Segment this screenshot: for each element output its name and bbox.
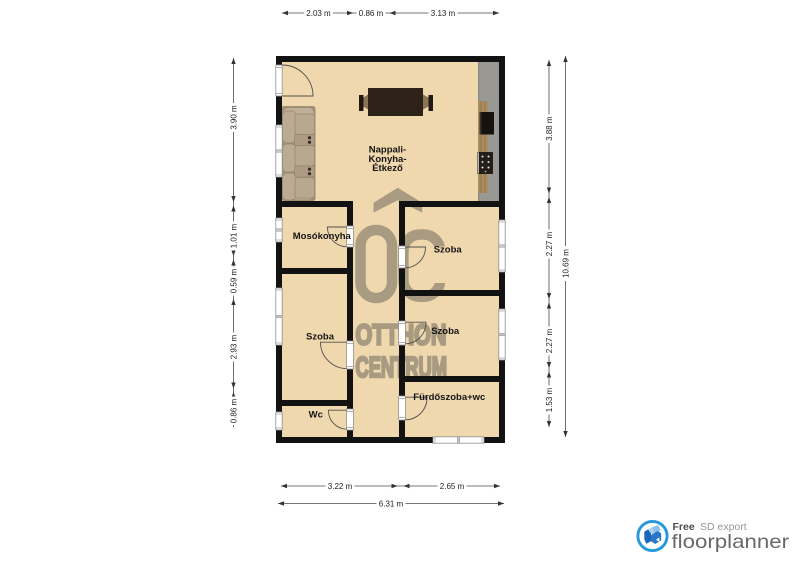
svg-text:floorplanner: floorplanner: [672, 531, 790, 553]
svg-text:3.13 m: 3.13 m: [431, 9, 456, 18]
svg-text:0.86 m: 0.86 m: [359, 9, 384, 18]
svg-text:Szoba: Szoba: [306, 332, 335, 343]
svg-text:0.59 m: 0.59 m: [230, 268, 239, 293]
svg-text:6.31 m: 6.31 m: [379, 500, 404, 509]
svg-text:Fürdőszoba+wc: Fürdőszoba+wc: [413, 392, 485, 403]
svg-text:Mosókonyha: Mosókonyha: [293, 231, 352, 242]
svg-text:2.27 m: 2.27 m: [545, 328, 554, 353]
svg-text:2.03 m: 2.03 m: [306, 9, 331, 18]
svg-text:3.88 m: 3.88 m: [545, 116, 554, 141]
svg-text:3.90 m: 3.90 m: [230, 105, 239, 130]
svg-text:10.69 m: 10.69 m: [562, 249, 571, 278]
svg-text:2.93 m: 2.93 m: [230, 334, 239, 359]
svg-text:Wc: Wc: [309, 410, 323, 421]
svg-text:1.53 m: 1.53 m: [545, 387, 554, 412]
svg-text:Étkező: Étkező: [372, 163, 403, 174]
svg-text:Szoba: Szoba: [434, 245, 463, 256]
svg-text:1.01 m: 1.01 m: [230, 223, 239, 248]
svg-text:Szoba: Szoba: [431, 326, 460, 337]
svg-text:2.65 m: 2.65 m: [440, 482, 465, 491]
svg-text:0.86 m: 0.86 m: [230, 398, 239, 423]
svg-text:2.27 m: 2.27 m: [545, 231, 554, 256]
svg-text:3.22 m: 3.22 m: [328, 482, 353, 491]
